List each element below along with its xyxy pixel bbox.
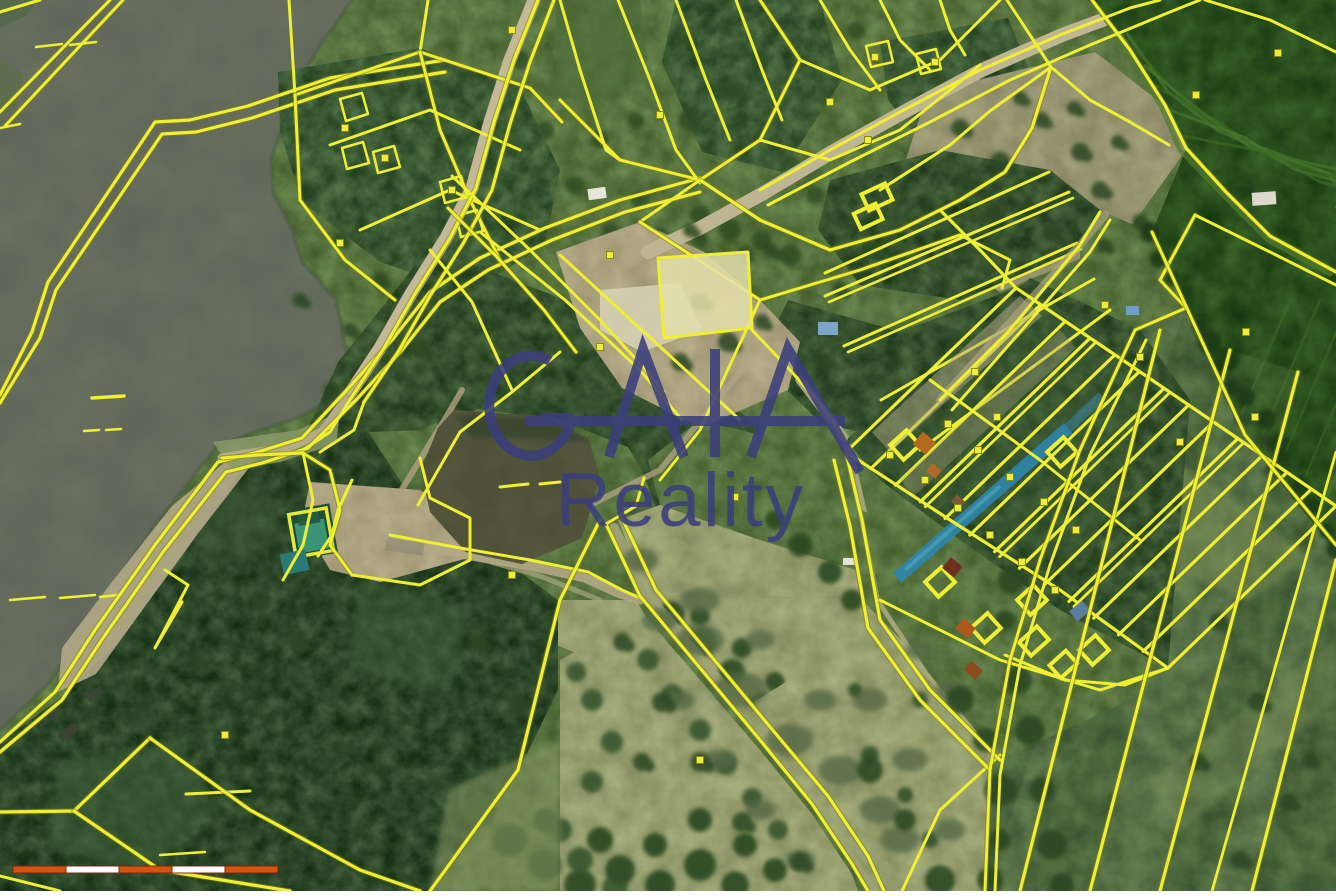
svg-text:Reality: Reality (556, 458, 806, 543)
